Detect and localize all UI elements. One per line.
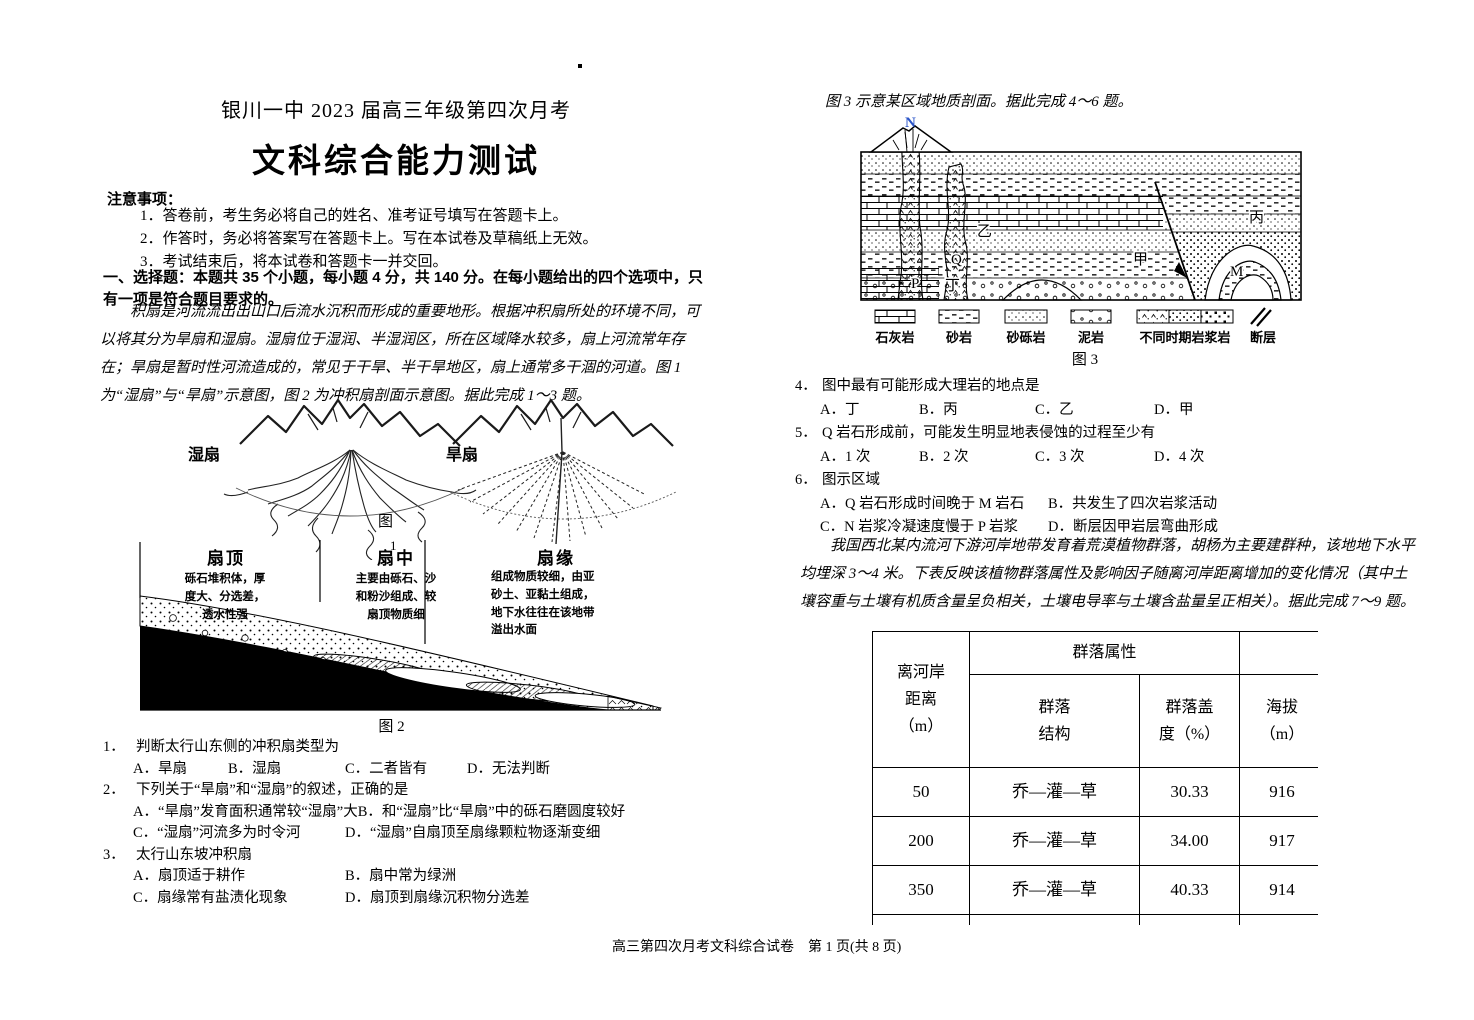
- option-d: D．“湿扇”自扇顶至扇缘颗粒物逐渐变细: [345, 823, 600, 845]
- option-b: B．扇中常为绿洲: [345, 866, 456, 888]
- mountain-ridge: [240, 400, 460, 446]
- question-4-options: A．丁B．丙C．乙D．甲: [795, 399, 1435, 423]
- question-number: 3．: [103, 845, 136, 867]
- question-1: 1．判断太行山东侧的冲积扇类型为: [103, 737, 723, 759]
- table-row: 200 乔—灌—草 34.00 917: [873, 817, 1319, 866]
- question-3: 3．太行山东坡冲积扇: [103, 845, 723, 867]
- cell-coverage: 30.33: [1140, 768, 1240, 817]
- zone-title-fanedge: 扇缘: [537, 544, 575, 569]
- legend-sandstone: 砂岩: [945, 330, 972, 345]
- zone-desc-fanmid: 主要由砾石、沙 和粉沙组成、较 扇顶物质细: [335, 571, 457, 624]
- option-a: A．1 次: [820, 446, 919, 470]
- option-c: C．乙: [1035, 399, 1154, 423]
- label-q: Q: [951, 252, 962, 268]
- zone-title-fanmid: 扇中: [377, 544, 415, 569]
- question-stem: 下列关于“旱扇”和“湿扇”的叙述，正确的是: [136, 782, 408, 798]
- table-row: 50 乔—灌—草 30.33 916: [873, 768, 1319, 817]
- figure1-caption: 图: [378, 513, 393, 530]
- option-b: B．2 次: [919, 446, 1035, 470]
- page-title: 文科综合能力测试: [100, 134, 692, 182]
- figure1-canvas: 湿扇 旱扇 图 1: [128, 392, 693, 560]
- question-2-options-ab: A．“旱扇”发育面积通常较“湿扇”大B．和“湿扇”比“旱扇”中的砾石磨圆度较好: [103, 802, 723, 824]
- option-d: D．甲: [1154, 399, 1193, 423]
- question-number: 1．: [103, 737, 136, 759]
- option-c: C．二者皆有: [345, 759, 467, 781]
- question-2: 2．下列关于“旱扇”和“湿扇”的叙述，正确的是: [103, 780, 723, 802]
- dry-fan-label: 旱扇: [446, 445, 478, 464]
- col-header-coverage: 群落盖 度（%）: [1140, 675, 1240, 768]
- option-d: D．扇顶到扇缘沉积物分选差: [345, 888, 529, 910]
- figure3-canvas: N P 丁 Q 乙 甲 M 丙 石灰岩 砂岩 砂砾岩 泥岩 不同时期岩浆岩 断层…: [853, 112, 1313, 370]
- cell-distance: 200: [873, 817, 970, 866]
- option-b: B．和“湿扇”比“旱扇”中的砾石磨圆度较好: [358, 802, 625, 824]
- option-c: C．扇缘常有盐渍化现象: [133, 888, 345, 910]
- scan-dot: [578, 64, 582, 68]
- option-c: C．3 次: [1035, 446, 1154, 470]
- table-row: 350 乔—灌—草 40.33 914: [873, 866, 1319, 915]
- question-6: 6．图示区域: [795, 469, 1435, 493]
- label-yi: 乙: [977, 224, 992, 240]
- label-m: M: [1230, 264, 1243, 280]
- col-header-empty: [1240, 632, 1318, 675]
- figure3-legend: [875, 308, 1271, 326]
- question-5: 5．Q 岩石形成前，可能发生明显地表侵蚀的过程至少有: [795, 422, 1435, 446]
- wet-fan-label: 湿扇: [187, 445, 220, 464]
- table-row-clipped: [873, 915, 1319, 926]
- legend-limestone: 石灰岩: [874, 330, 914, 345]
- legend-fault: 断层: [1250, 330, 1276, 345]
- legend-conglomerate: 砂砾岩: [1005, 330, 1045, 345]
- figure3-lead: 图 3 示意某区域地质剖面。据此完成 4～6 题。: [825, 90, 1133, 111]
- cell-elevation: 916: [1240, 768, 1318, 817]
- question-stem: 太行山东坡冲积扇: [136, 847, 252, 863]
- question-stem: 图中最有可能形成大理岩的地点是: [822, 378, 1040, 394]
- figure3-geology: N P 丁 Q 乙 甲 M 丙 石灰岩 砂岩 砂砾岩 泥岩 不同时期岩浆岩 断层…: [853, 112, 1313, 370]
- option-d: D．无法判断: [467, 759, 550, 781]
- question-stem: 判断太行山东侧的冲积扇类型为: [136, 739, 339, 755]
- option-a: A．旱扇: [133, 759, 228, 781]
- notice-item: 1．答卷前，考生务必将自己的姓名、准考证号填写在答题卡上。: [140, 205, 720, 228]
- option-a: A．扇顶适于耕作: [133, 866, 345, 888]
- zone-title-fantop: 扇顶: [207, 544, 245, 569]
- exam-header-line: 银川一中 2023 届高三年级第四次月考: [100, 94, 692, 123]
- wet-fan-arc: [236, 488, 464, 516]
- cell-coverage: 40.33: [1140, 866, 1240, 915]
- community-table-wrap: 离河岸 距离 （m） 群落属性 群落 结构 群落盖 度（%） 海拔 （m） 50…: [872, 631, 1318, 925]
- figure3-caption: 图 3: [1072, 351, 1098, 368]
- option-c: C．“湿扇”河流多为时令河: [133, 823, 345, 845]
- option-b: B．湿扇: [228, 759, 345, 781]
- question-number: 6．: [795, 469, 822, 493]
- label-ding: 丁: [945, 278, 960, 294]
- col-header-structure: 群落 结构: [970, 675, 1140, 768]
- question-stem: Q 岩石形成前，可能发生明显地表侵蚀的过程至少有: [822, 425, 1155, 441]
- legend-mudstone: 泥岩: [1078, 330, 1104, 345]
- cell-structure: 乔—灌—草: [970, 866, 1140, 915]
- magma-conduit-n: [898, 130, 923, 300]
- dry-fan-streams: [458, 452, 646, 542]
- page-footer: 高三第四次月考文科综合试卷 第 1 页(共 8 页): [612, 936, 901, 956]
- option-d: D．4 次: [1154, 446, 1204, 470]
- question-3-options-ab: A．扇顶适于耕作B．扇中常为绿洲: [103, 866, 723, 888]
- notice-item: 2．作答时，务必将答案写在答题卡上。写在本试卷及草稿纸上无效。: [140, 228, 720, 251]
- option-a: A．丁: [820, 399, 919, 423]
- passage-desert-vegetation: 我国西北某内流河下游河岸地带发育着荒漠植物群落，胡杨为主要建群种，该地地下水平均…: [800, 532, 1418, 616]
- dry-fan-arc: [450, 492, 676, 519]
- legend-igneous: 不同时期岩浆岩: [1139, 330, 1230, 345]
- col-header-community-attrs: 群落属性: [970, 632, 1240, 675]
- col-header-distance: 离河岸 距离 （m）: [873, 632, 970, 768]
- cell-distance: 50: [873, 768, 970, 817]
- questions-1-3: 1．判断太行山东侧的冲积扇类型为 A．旱扇B．湿扇C．二者皆有D．无法判断 2．…: [103, 737, 723, 909]
- cell-distance: 350: [873, 866, 970, 915]
- option-a: A．Q 岩石形成时间晚于 M 岩石: [820, 493, 1048, 517]
- label-jia: 甲: [1133, 252, 1148, 268]
- north-label: N: [905, 115, 916, 131]
- zone-desc-fantop: 砾石堆积体，厚 度大、分选差， 透水性强: [163, 571, 287, 624]
- option-b: B．共发生了四次岩浆活动: [1048, 493, 1217, 517]
- label-p: P: [911, 276, 919, 292]
- community-table: 离河岸 距离 （m） 群落属性 群落 结构 群落盖 度（%） 海拔 （m） 50…: [872, 631, 1318, 925]
- col-header-elevation: 海拔 （m）: [1240, 675, 1318, 768]
- question-6-options-ab: A．Q 岩石形成时间晚于 M 岩石B．共发生了四次岩浆活动: [795, 493, 1435, 517]
- label-bing: 丙: [1249, 210, 1264, 226]
- question-2-options-cd: C．“湿扇”河流多为时令河D．“湿扇”自扇顶至扇缘颗粒物逐渐变细: [103, 823, 723, 845]
- cell-structure: 乔—灌—草: [970, 768, 1140, 817]
- cell-coverage: 34.00: [1140, 817, 1240, 866]
- question-number: 5．: [795, 422, 822, 446]
- cell-elevation: 917: [1240, 817, 1318, 866]
- fan-edge-bed: [608, 696, 661, 710]
- question-3-options-cd: C．扇缘常有盐渍化现象D．扇顶到扇缘沉积物分选差: [103, 888, 723, 910]
- question-stem: 图示区域: [822, 472, 880, 488]
- question-1-options: A．旱扇B．湿扇C．二者皆有D．无法判断: [103, 759, 723, 781]
- notice-list: 1．答卷前，考生务必将自己的姓名、准考证号填写在答题卡上。 2．作答时，务必将答…: [140, 205, 720, 274]
- zone-desc-fanedge: 组成物质较细，由亚 砂土、亚黏土组成， 地下水往往在该地带 溢出水面: [491, 569, 641, 640]
- figure2-fan-section: 扇顶 砾石堆积体，厚 度大、分选差， 透水性强 扇中 主要由砾石、沙 和粉沙组成…: [113, 538, 670, 738]
- option-b: B．丙: [919, 399, 1035, 423]
- cell-elevation: 914: [1240, 866, 1318, 915]
- exam-page: { "page": { "header_line": "银川一中 2023 届高…: [0, 0, 1474, 1020]
- question-4: 4．图中最有可能形成大理岩的地点是: [795, 375, 1435, 399]
- option-a: A．“旱扇”发育面积通常较“湿扇”大: [133, 802, 358, 824]
- figure2-caption: 图 2: [113, 715, 670, 736]
- question-5-options: A．1 次B．2 次C．3 次D．4 次: [795, 446, 1435, 470]
- figure1-fan-diagram: 湿扇 旱扇 图 1: [128, 392, 693, 560]
- cell-structure: 乔—灌—草: [970, 817, 1140, 866]
- question-number: 4．: [795, 375, 822, 399]
- questions-4-6: 4．图中最有可能形成大理岩的地点是 A．丁B．丙C．乙D．甲 5．Q 岩石形成前…: [795, 375, 1435, 540]
- question-number: 2．: [103, 780, 136, 802]
